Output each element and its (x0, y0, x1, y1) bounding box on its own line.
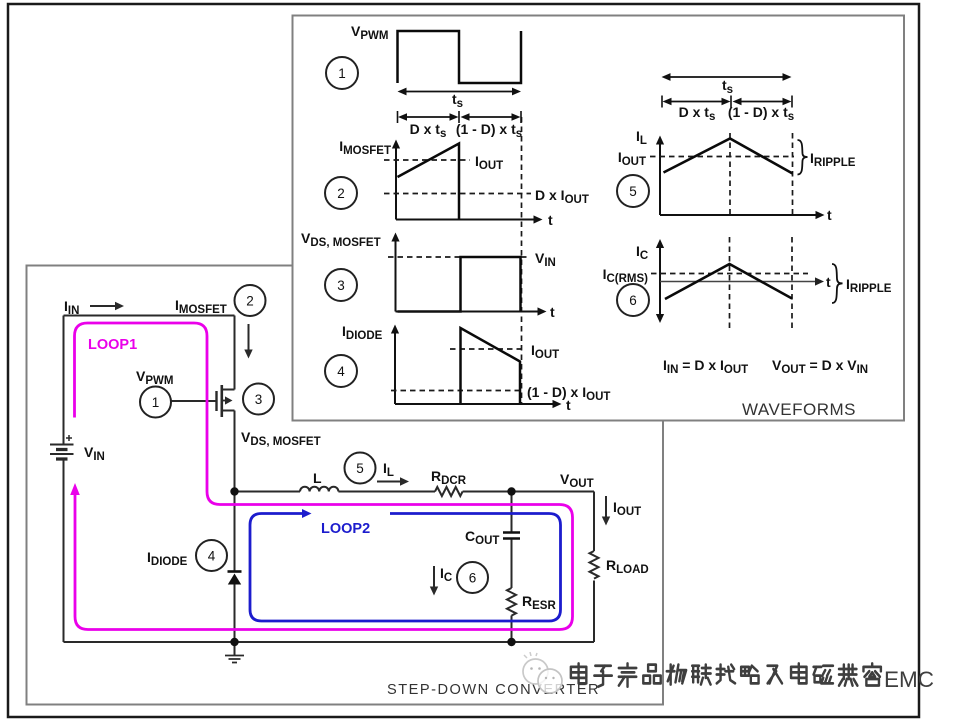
svg-text:t: t (826, 274, 831, 290)
svg-text:LOOP1: LOOP1 (88, 337, 137, 353)
svg-text:STEP-DOWN CONVERTER: STEP-DOWN CONVERTER (387, 682, 600, 698)
svg-text:t: t (827, 207, 832, 223)
svg-text:2: 2 (246, 294, 254, 309)
svg-text:1: 1 (152, 395, 160, 410)
svg-text:L: L (313, 470, 322, 486)
svg-text:6: 6 (629, 293, 637, 308)
svg-text:6: 6 (469, 571, 477, 586)
svg-text:t: t (566, 397, 571, 413)
svg-text:4: 4 (337, 364, 345, 379)
svg-text:5: 5 (629, 184, 637, 199)
svg-text:1: 1 (338, 66, 346, 81)
svg-text:3: 3 (337, 278, 345, 293)
svg-text:3: 3 (255, 392, 263, 407)
svg-text:4: 4 (208, 549, 216, 564)
svg-text:t: t (550, 304, 555, 320)
svg-text:5: 5 (356, 461, 364, 476)
svg-text:t: t (548, 212, 553, 228)
svg-text:WAVEFORMS: WAVEFORMS (742, 400, 856, 419)
svg-text:LOOP2: LOOP2 (321, 521, 370, 537)
svg-text:2: 2 (337, 186, 345, 201)
svg-text:EMC: EMC (884, 667, 934, 692)
